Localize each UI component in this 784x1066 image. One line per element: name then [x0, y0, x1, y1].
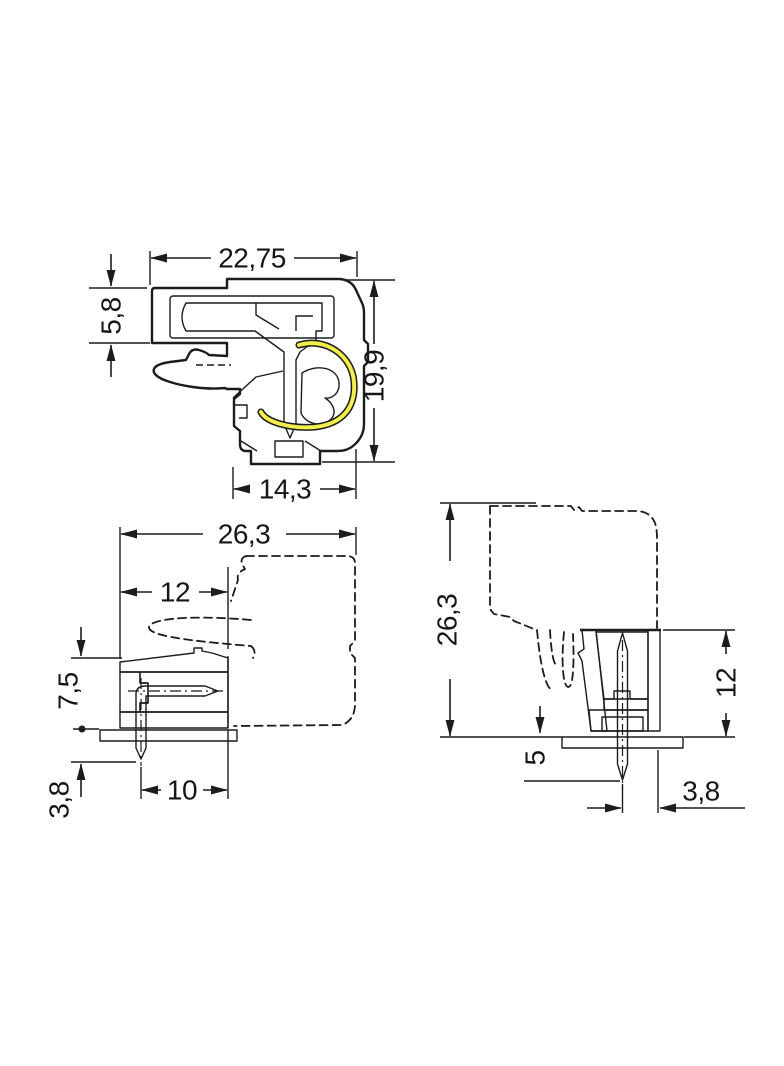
- clamp-cavity: [301, 368, 339, 424]
- view-side-vertical: 26,3 12 5 3,8: [432, 503, 746, 813]
- header-bottom-wall-right: [589, 710, 648, 731]
- dim-label-pin-protrusion: 5: [520, 750, 551, 765]
- dimension-header-depth: 12: [121, 567, 228, 649]
- dimension-total-height-right: 26,3: [432, 503, 563, 737]
- dim-label-pin-edge-offset: 3,8: [682, 776, 719, 807]
- clamp-cage-lines: [233, 371, 321, 451]
- mating-connector-outline-right: [490, 506, 657, 691]
- dim-label-overall-width: 22,75: [218, 243, 286, 274]
- dimension-origin-dot: [79, 726, 86, 733]
- dim-label-lower-width: 14,3: [259, 474, 312, 505]
- view-cross-section: 22,75 5,8 19,9 14,3: [89, 243, 395, 505]
- dim-label-height-above-pcb: 7,5: [53, 672, 84, 709]
- technical-drawing-page: 22,75 5,8 19,9 14,3: [0, 0, 784, 1066]
- pin-slot: [275, 441, 303, 457]
- dim-label-header-height-right: 12: [711, 668, 742, 698]
- dim-label-total-height-right: 26,3: [432, 594, 463, 647]
- technical-drawing-canvas: 22,75 5,8 19,9 14,3: [0, 0, 784, 1066]
- dim-label-upper-height: 5,8: [96, 297, 127, 334]
- dim-label-overall-height: 19,9: [359, 350, 390, 403]
- dim-label-pin-offset: 10: [167, 775, 197, 806]
- dimension-pin-below-pcb-left: 3,8: [44, 762, 137, 819]
- dimension-depth-total: 26,3: [120, 519, 356, 660]
- header-top-wall: [120, 648, 228, 672]
- contact-detail-lines: [256, 303, 313, 331]
- header-pin-pedestal: [604, 691, 648, 710]
- dimension-upper-height: 5,8: [89, 254, 150, 377]
- dim-label-depth-total: 26,3: [218, 519, 271, 550]
- header-left-wall-right: [578, 630, 607, 731]
- pcb-board-left-view: [100, 730, 237, 741]
- header-left-wall: [120, 672, 148, 712]
- dimension-header-height-right: 12: [663, 630, 742, 737]
- view-side-angled: 26,3 12 7,5 3,8 10: [44, 519, 357, 819]
- dimension-height-above-pcb: 7,5: [53, 627, 123, 733]
- dim-label-pin-below-pcb-left: 3,8: [44, 781, 75, 818]
- dim-label-header-depth: 12: [160, 577, 190, 608]
- header-right-wall-right: [648, 630, 660, 731]
- busbar-conductor: [182, 303, 322, 438]
